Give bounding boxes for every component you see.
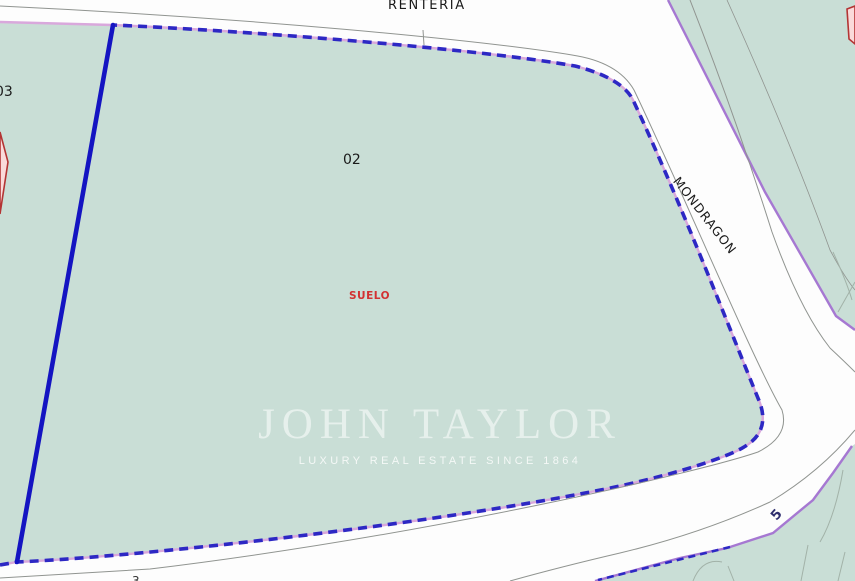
red-overlay-northeast <box>847 6 855 44</box>
street-label-renteria: RENTERIA <box>388 0 466 13</box>
cadastral-map: RENTERIA MONDRAGON 02 03 SUELO 5 3 JOHN … <box>0 0 855 581</box>
road-segment-tick <box>423 30 424 45</box>
map-canvas <box>0 0 855 581</box>
parcel-number-02: 02 <box>343 152 361 168</box>
land-use-label: SUELO <box>349 290 390 302</box>
road-number-bottom-clipped: 3 <box>132 574 140 581</box>
parcel-number-03: 03 <box>0 84 13 100</box>
